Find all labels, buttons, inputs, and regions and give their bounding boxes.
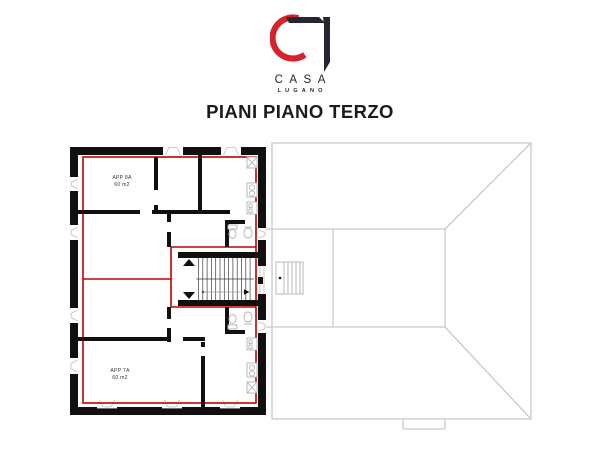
brand-name: CASA: [0, 74, 600, 86]
floor-plan: APP 8A 60 m2 APP 7A 60 m2: [70, 147, 267, 411]
casa-logo-icon: [270, 14, 334, 76]
logo-corner-bar: [323, 17, 330, 72]
walkline-start-dot: [202, 291, 205, 294]
roof-ridge-lines: [266, 143, 531, 419]
exterior-walls: [74, 151, 262, 411]
logo-arc: [273, 18, 305, 59]
plans-drawing: APP 8A 60 m2 APP 7A 60 m2: [0, 140, 600, 450]
apartment-7a-name: APP 7A: [110, 368, 130, 374]
page-title: PIANI PIANO TERZO: [0, 101, 600, 123]
logo-top-bar: [286, 17, 325, 23]
brand-subname: LUGANO: [0, 88, 600, 94]
kitchen-fixtures-top: [247, 157, 257, 214]
roof-stair-dot: [279, 277, 282, 280]
roof-plan: [266, 143, 531, 429]
roof-staircase: [276, 262, 303, 294]
apartment-8a-area: 60 m2: [114, 182, 129, 188]
apartment-8a-name: APP 8A: [112, 175, 132, 181]
apartment-7a-area: 60 m2: [112, 375, 127, 381]
page: CASA LUGANO PIANI PIANO TERZO: [0, 0, 600, 450]
kitchen-fixtures-bottom: [247, 338, 257, 393]
roof-dormer-notch: [403, 419, 445, 429]
